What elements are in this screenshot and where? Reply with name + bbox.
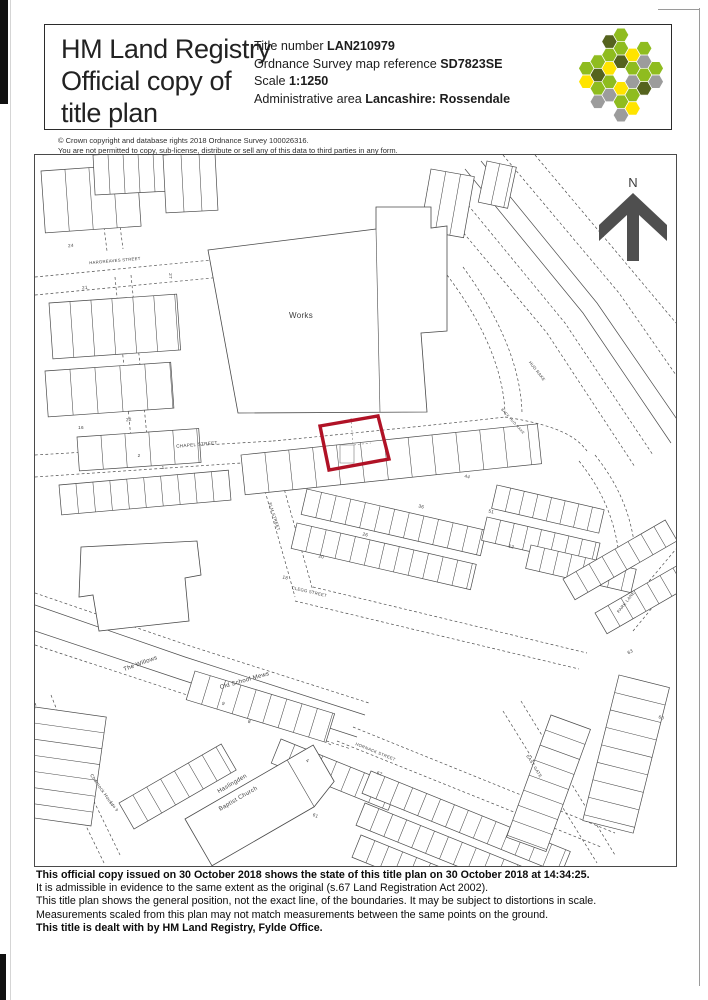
map-house-number: 21 <box>82 285 88 290</box>
title-plan-page: { "header": { "org": "HM Land Registry",… <box>0 0 708 1000</box>
org-name: HM Land Registry <box>61 33 271 65</box>
map-house-number: 44 <box>464 473 471 479</box>
title-plan-map: N WorksCHAPEL STREETHARGREAVES STREETELM… <box>34 154 677 867</box>
map-house-number: 1 <box>162 465 165 470</box>
field-label: Ordnance Survey map reference <box>254 57 440 71</box>
map-house-number: 26 <box>362 531 369 537</box>
field-value: 1:1250 <box>289 74 328 88</box>
logo-hex-cell <box>590 95 605 108</box>
terrace-outline <box>77 428 201 470</box>
map-house-number: 2 <box>138 453 141 458</box>
map-label: 1 to 9 <box>109 800 120 813</box>
header-panel: HM Land Registry Official copy of title … <box>44 24 672 130</box>
scan-artifact-bottom-left <box>0 954 6 1000</box>
road-line <box>447 275 505 417</box>
map-label: CLEGG STREET <box>291 585 327 598</box>
map-house-number: 36 <box>418 503 425 509</box>
terrace-row <box>186 671 334 742</box>
field-label: Title number <box>254 39 327 53</box>
map-house-number: 51 <box>488 508 495 514</box>
doc-type-line-2: title plan <box>61 97 271 129</box>
logo-hex-cell <box>636 42 651 55</box>
map-label: HARGREAVES STREET <box>89 256 141 265</box>
map-house-number: 18 <box>282 574 289 580</box>
copyright-line-1: © Crown copyright and database rights 20… <box>58 136 398 146</box>
terrace-row <box>59 470 231 515</box>
road-line <box>595 455 635 549</box>
footer-line-issued: This official copy issued on 30 October … <box>36 869 676 882</box>
road-line <box>295 601 579 669</box>
map-house-number: 8 <box>247 719 251 725</box>
footer-line-admissible: It is admissible in evidence to the same… <box>36 882 676 895</box>
logo-hexagons-icon <box>573 27 669 123</box>
map-label: HUD RAKE <box>528 360 547 382</box>
logo-hex-cell <box>613 108 628 121</box>
doc-type-line-1: Official copy of <box>61 65 271 97</box>
terrace-row <box>45 362 174 417</box>
terrace-row <box>49 294 181 359</box>
terrace-outline <box>163 155 218 213</box>
logo-hex-cell <box>613 28 628 41</box>
north-label: N <box>628 175 637 190</box>
map-house-number: 61 <box>312 812 319 819</box>
copyright-note: © Crown copyright and database rights 20… <box>58 136 398 156</box>
field-admin-area: Administrative area Lancashire: Rossenda… <box>254 91 510 109</box>
map-house-number: 12 <box>508 543 515 549</box>
page-border-left <box>10 0 11 1000</box>
terrace-outline <box>478 161 516 208</box>
north-arrow-icon <box>599 193 667 261</box>
road-line <box>313 587 587 653</box>
road-line <box>481 161 676 431</box>
page-border-top-tick <box>658 9 700 10</box>
org-title: HM Land Registry Official copy of title … <box>61 33 271 129</box>
map-house-number: 27 <box>168 273 173 279</box>
road-line <box>35 275 243 295</box>
field-title-number: Title number LAN210979 <box>254 38 510 56</box>
map-label: HORNACK STREET <box>355 741 397 762</box>
willows-building <box>79 541 201 631</box>
hm-land-registry-logo-icon <box>573 27 669 123</box>
map-label: Works <box>289 311 313 320</box>
title-fields: Title number LAN210979 Ordnance Survey m… <box>254 38 510 108</box>
terrace-outline <box>241 424 542 495</box>
field-value: Lancashire: Rossendale <box>365 92 510 106</box>
footer-line-office: This title is dealt with by HM Land Regi… <box>36 922 676 935</box>
terrace-row <box>77 428 201 470</box>
logo-hex-cell <box>579 75 594 88</box>
logo-hex-cell <box>648 62 663 75</box>
field-os-reference: Ordnance Survey map reference SD7823SE <box>254 56 510 74</box>
terrace-row <box>35 707 106 826</box>
map-house-number: 20 <box>318 553 325 559</box>
logo-hex-cell <box>648 75 663 88</box>
terrace-row <box>163 155 218 213</box>
map-house-number: 16 <box>78 425 84 430</box>
plot-inner-building <box>340 445 354 463</box>
field-value: SD7823SE <box>440 57 502 71</box>
map-house-number: 24 <box>68 243 74 248</box>
field-label: Scale <box>254 74 289 88</box>
terrace-outline <box>507 715 591 852</box>
field-value: LAN210979 <box>327 39 395 53</box>
map-label: ELM STREET <box>268 502 282 532</box>
footer-notes: This official copy issued on 30 October … <box>36 869 676 935</box>
map-house-number: 63 <box>627 648 635 655</box>
road-line <box>463 267 522 413</box>
footer-line-measurements: Measurements scaled from this plan may n… <box>36 909 676 922</box>
page-border-right <box>699 8 700 986</box>
scan-artifact-top-left <box>0 0 8 104</box>
terrace-row <box>583 675 670 833</box>
field-scale: Scale 1:1250 <box>254 73 510 91</box>
road-line <box>503 155 676 375</box>
works-building <box>208 207 447 413</box>
footer-line-general-position: This title plan shows the general positi… <box>36 895 676 908</box>
terrace-row <box>241 424 542 495</box>
terrace-row <box>478 161 516 208</box>
terrace-outline <box>583 675 670 833</box>
os-map: N WorksCHAPEL STREETHARGREAVES STREETELM… <box>35 155 676 866</box>
logo-hex-cell <box>579 62 594 75</box>
terrace-outline <box>45 362 174 417</box>
field-label: Administrative area <box>254 92 365 106</box>
map-house-number: 22 <box>126 417 132 422</box>
road-line <box>535 155 676 323</box>
terrace-outline <box>49 294 181 359</box>
terrace-row <box>507 715 591 852</box>
